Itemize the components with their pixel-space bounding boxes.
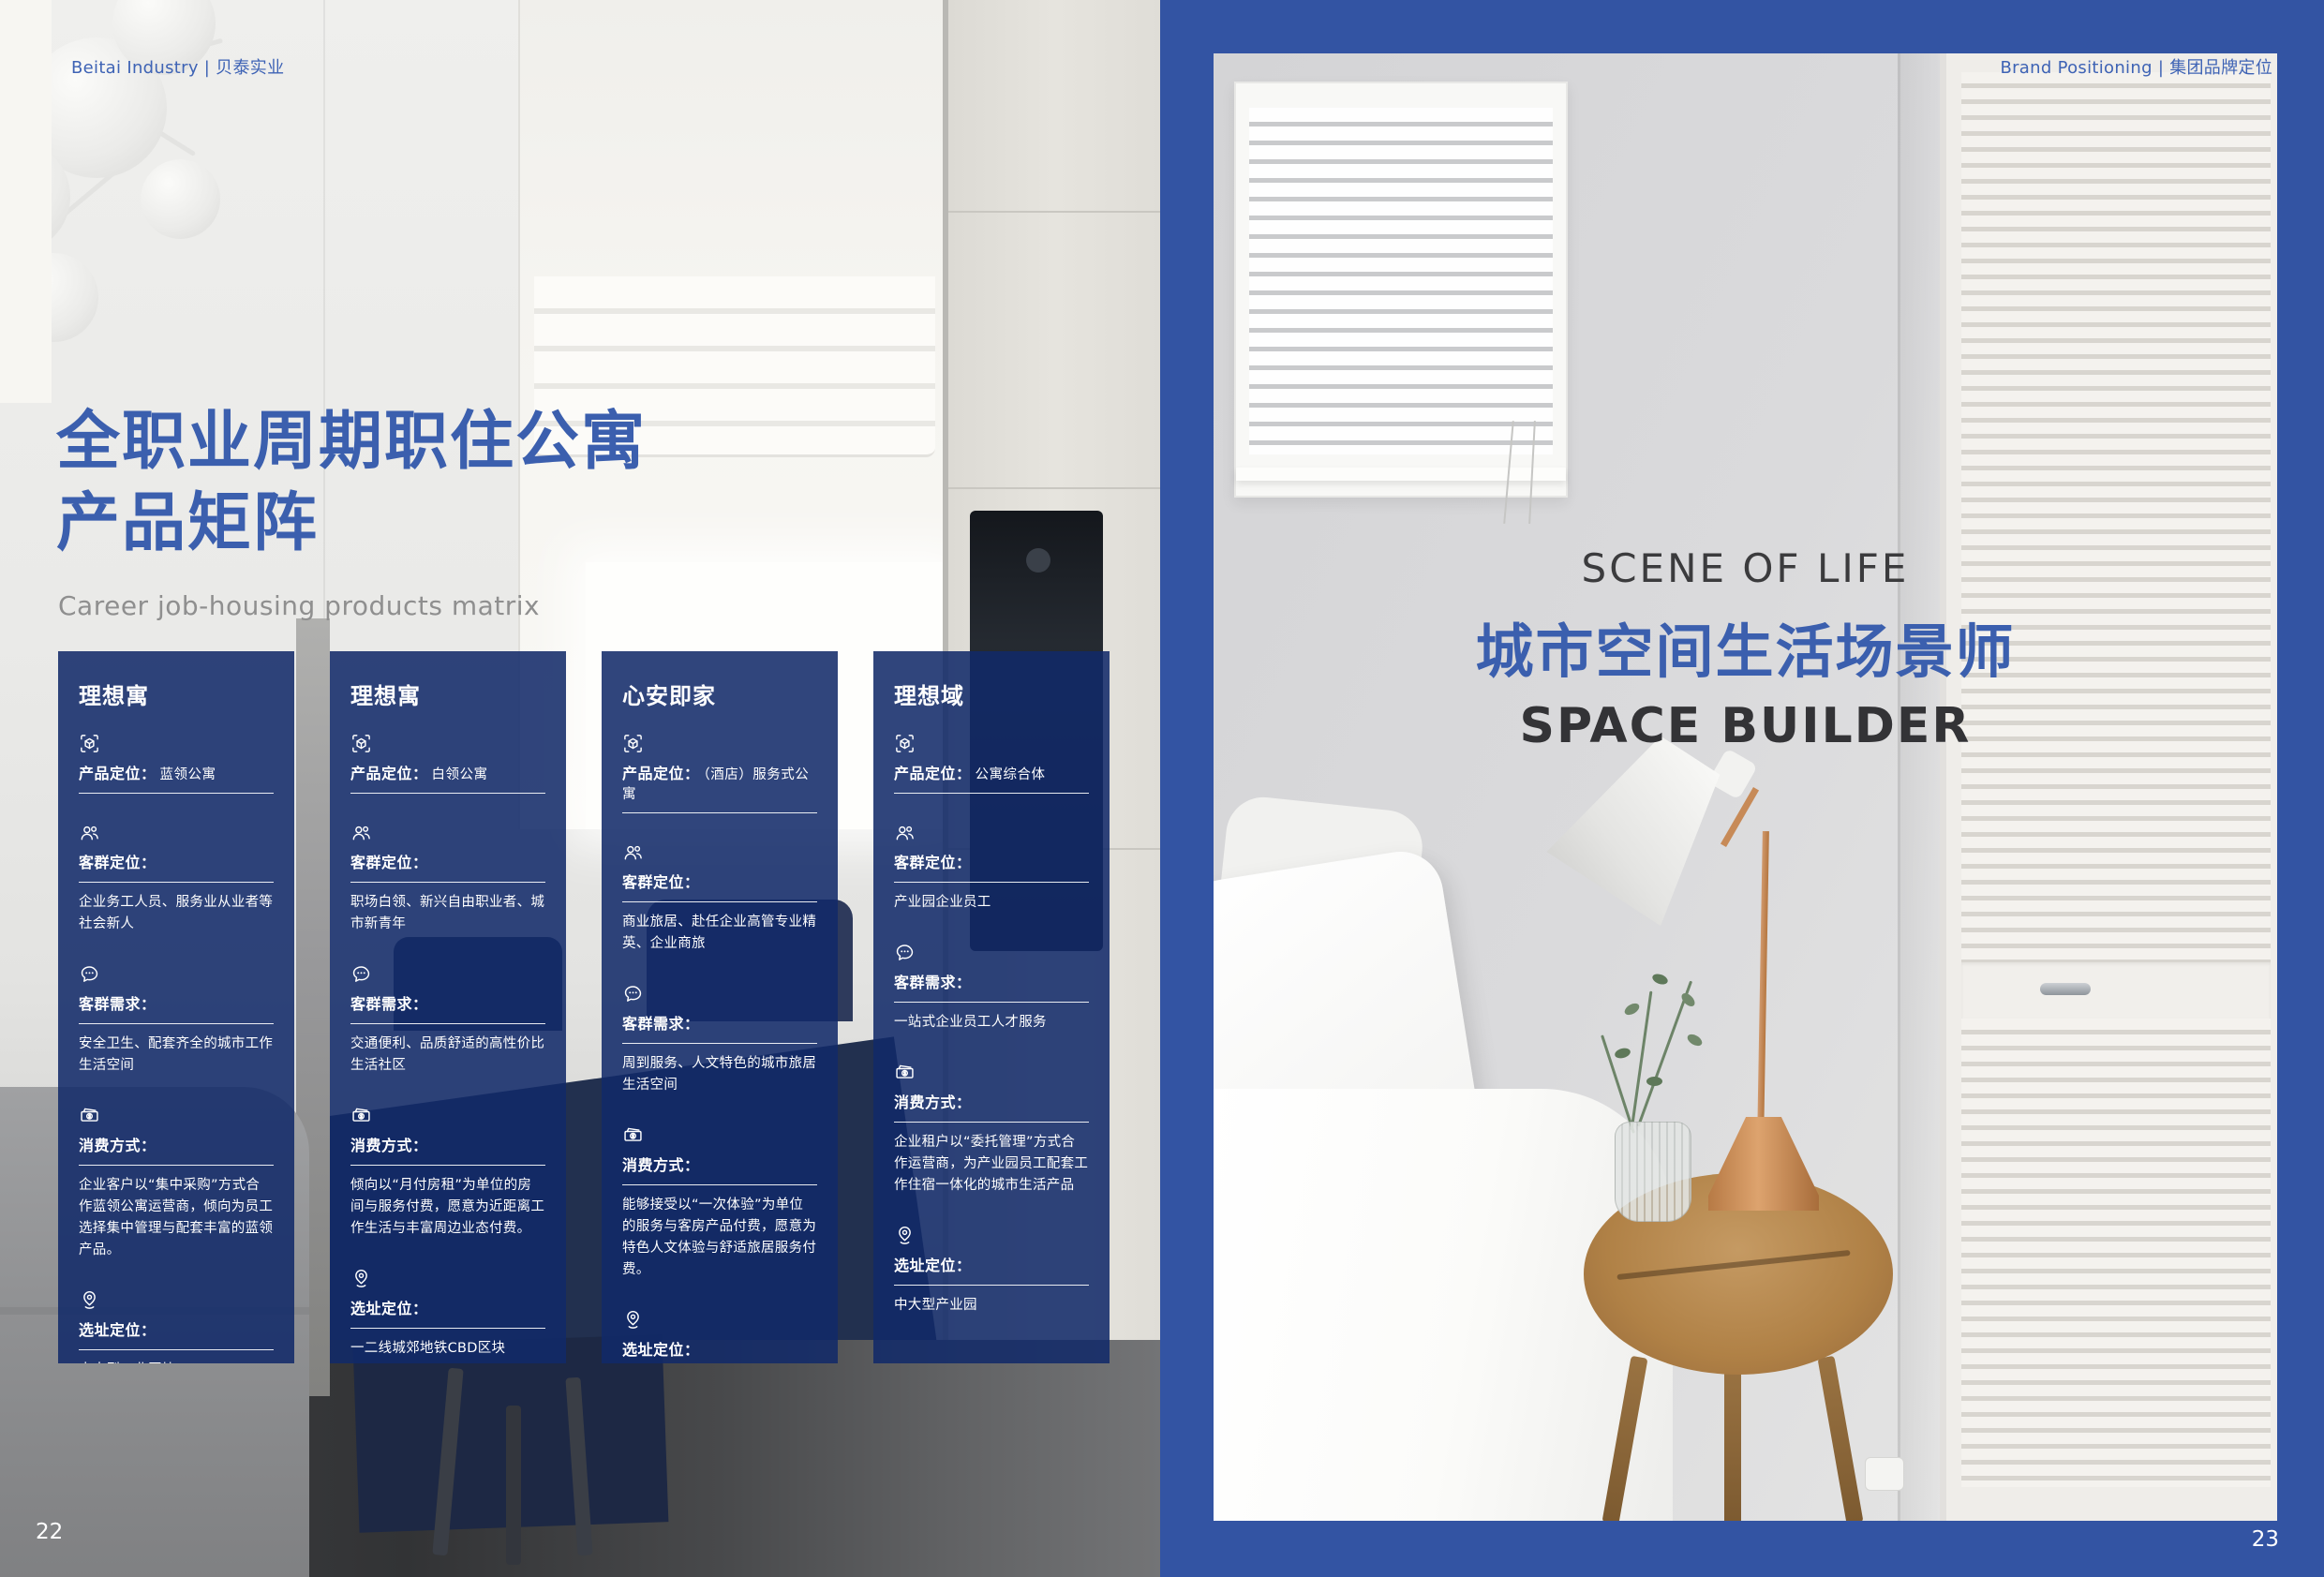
needs-value: 交通便利、品质舒适的高性价比生活社区: [350, 1034, 545, 1077]
banknote-icon: [79, 1105, 100, 1126]
left-page-header: Beitai Industry | 贝泰实业: [71, 54, 284, 79]
chair-leg: [506, 1406, 521, 1565]
audience-section: 客群定位： 企业务工人员、服务业从业者等社会新人: [79, 822, 274, 935]
audience-label: 客群定位：: [350, 850, 545, 883]
product-label: 产品定位：: [350, 765, 428, 782]
product-value: 蓝领公寓: [160, 767, 216, 782]
audience-section: 客群定位： 商业旅居、赴任企业高管专业精英、企业商旅: [622, 841, 817, 955]
site-section: 选址定位： 一二线核心CBD区块: [622, 1309, 817, 1363]
left-page: Beitai Industry | 贝泰实业 全职业周期职住公寓 产品矩阵 Ca…: [0, 0, 1160, 1577]
spend-value: 企业客户以“集中采购”方式合作蓝领公寓运营商，倾向为员工选择集中管理与配套丰富的…: [79, 1175, 274, 1261]
product-section: 产品定位：公寓综合体: [894, 733, 1089, 794]
side-window-light: [0, 0, 52, 403]
site-label: 选址定位：: [350, 1296, 545, 1329]
louver-panel-top: [1961, 72, 2271, 962]
needs-value: 一站式企业员工人才服务: [894, 1012, 1089, 1034]
needs-label: 客群需求：: [622, 1011, 817, 1044]
cube-icon: [622, 733, 644, 754]
plant-leaf: [1614, 1047, 1631, 1060]
desk-lamp-rod: [1757, 831, 1769, 1140]
chat-bubble-icon: [622, 983, 644, 1004]
oven-dial: [1026, 548, 1050, 573]
right-page-header: Brand Positioning | 集团品牌定位: [2000, 54, 2272, 79]
page-subtitle: Career job-housing products matrix: [58, 590, 540, 621]
product-section: 产品定位：蓝领公寓: [79, 733, 274, 794]
spend-section: 消费方式： 企业租户以“委托管理”方式合作运营商，为产业园员工配套工作住宿一体化…: [894, 1062, 1089, 1197]
page-number-left: 22: [36, 1520, 63, 1544]
banknote-icon: [350, 1105, 372, 1126]
cube-icon: [350, 733, 372, 754]
product-card: 理想域 产品定位：公寓综合体 客群定位： 产业园企业员工 客群需求： 一站式企业…: [873, 651, 1110, 1363]
brochure-spread: Beitai Industry | 贝泰实业 全职业周期职住公寓 产品矩阵 Ca…: [0, 0, 2324, 1577]
audience-value: 职场白领、新兴自由职业者、城市新青年: [350, 892, 545, 935]
product-section: 产品定位：（酒店）服务式公寓: [622, 733, 817, 813]
needs-section: 客群需求： 周到服务、人文特色的城市旅居生活空间: [622, 983, 817, 1096]
users-icon: [79, 822, 100, 843]
wardrobe-handle: [2040, 983, 2091, 995]
right-title-block: SCENE OF LIFE 城市空间生活场景师 SPACE BUILDER: [1214, 545, 2277, 754]
cube-icon: [894, 733, 916, 754]
page-title: 全职业周期职住公寓 产品矩阵: [56, 401, 647, 564]
audience-section: 客群定位： 职场白领、新兴自由职业者、城市新青年: [350, 822, 545, 935]
site-section: 选址定位： 中大型产业园: [894, 1225, 1089, 1317]
card-title: 理想寓: [350, 677, 545, 710]
users-icon: [350, 822, 372, 843]
audience-value: 产业园企业员工: [894, 892, 1089, 914]
page-title-line1: 全职业周期职住公寓: [56, 401, 647, 483]
site-label: 选址定位：: [894, 1253, 1089, 1286]
spend-section: 消费方式： 企业客户以“集中采购”方式合作蓝领公寓运营商，倾向为员工选择集中管理…: [79, 1105, 274, 1261]
audience-value: 商业旅居、赴任企业高管专业精英、企业商旅: [622, 912, 817, 955]
plant-leaf: [1686, 1032, 1705, 1048]
site-section: 选址定位： 中大型工业区块: [79, 1289, 274, 1363]
window-sill: [1236, 468, 1566, 481]
card-title: 心安即家: [622, 677, 817, 710]
product-section: 产品定位：白领公寓: [350, 733, 545, 794]
chat-bubble-icon: [350, 963, 372, 985]
card-title: 理想域: [894, 677, 1089, 710]
location-pin-icon: [622, 1309, 644, 1331]
location-pin-icon: [79, 1289, 100, 1311]
spend-label: 消费方式：: [622, 1153, 817, 1185]
users-icon: [622, 841, 644, 863]
audience-label: 客群定位：: [79, 850, 274, 883]
product-card: 心安即家 产品定位：（酒店）服务式公寓 客群定位： 商业旅居、赴任企业高管专业精…: [602, 651, 838, 1363]
spend-label: 消费方式：: [350, 1133, 545, 1166]
site-value: 一二线城郊地铁CBD区块: [350, 1338, 545, 1360]
audience-label: 客群定位：: [894, 850, 1089, 883]
product-label: 产品定位：: [622, 765, 700, 782]
right-page: SCENE OF LIFE 城市空间生活场景师 SPACE BUILDER Br…: [1160, 0, 2324, 1577]
product-card-row: 理想寓 产品定位：蓝领公寓 客群定位： 企业务工人员、服务业从业者等社会新人 客…: [58, 651, 1110, 1363]
wall-corner-shadow: [1900, 53, 1940, 1521]
stool-leg: [1724, 1365, 1741, 1521]
site-value: 中大型工业区块: [79, 1360, 274, 1363]
audience-label: 客群定位：: [622, 870, 817, 902]
right-title-en: SPACE BUILDER: [1214, 698, 2277, 754]
plant-leaf: [1646, 1077, 1662, 1086]
spend-value: 倾向以“月付房租”为单位的房间与服务付费，愿意为近距离工作生活与丰富周边业态付费…: [350, 1175, 545, 1240]
desk-lamp-base: [1708, 1117, 1819, 1211]
window-blinds: [1249, 108, 1553, 454]
right-title-cn: 城市空间生活场景师: [1214, 604, 2277, 689]
product-value: 白领公寓: [432, 767, 488, 782]
needs-value: 安全卫生、配套齐全的城市工作生活空间: [79, 1034, 274, 1077]
plant-leaf: [1651, 972, 1669, 986]
site-section: 选址定位： 一二线城郊地铁CBD区块: [350, 1268, 545, 1360]
users-icon: [894, 822, 916, 843]
needs-section: 客群需求： 一站式企业员工人才服务: [894, 942, 1089, 1034]
stool-leg: [1818, 1356, 1864, 1521]
louvered-wardrobe: [1940, 53, 2277, 1521]
audience-value: 企业务工人员、服务业从业者等社会新人: [79, 892, 274, 935]
product-label: 产品定位：: [894, 765, 972, 782]
louver-panel-bottom: [1961, 1019, 2271, 1487]
product-value: 公寓综合体: [976, 767, 1046, 782]
chat-bubble-icon: [894, 942, 916, 963]
site-label: 选址定位：: [622, 1337, 817, 1363]
spend-value: 企业租户以“委托管理”方式合作运营商，为产业园员工配套工作住宿一体化的城市生活产…: [894, 1132, 1089, 1197]
location-pin-icon: [350, 1268, 372, 1289]
product-card: 理想寓 产品定位：白领公寓 客群定位： 职场白领、新兴自由职业者、城市新青年 客…: [330, 651, 566, 1363]
product-card: 理想寓 产品定位：蓝领公寓 客群定位： 企业务工人员、服务业从业者等社会新人 客…: [58, 651, 294, 1363]
needs-value: 周到服务、人文特色的城市旅居生活空间: [622, 1053, 817, 1096]
bedroom-window: [1234, 82, 1568, 498]
banknote-icon: [894, 1062, 916, 1083]
spend-label: 消费方式：: [79, 1133, 274, 1166]
needs-label: 客群需求：: [350, 991, 545, 1024]
glass-vase: [1615, 1122, 1691, 1222]
needs-label: 客群需求：: [79, 991, 274, 1024]
wardrobe-band: [1961, 962, 2271, 1019]
spend-value: 能够接受以“一次体验”为单位的服务与客房产品付费，愿意为特色人文体验与舒适旅居服…: [622, 1195, 817, 1281]
card-title: 理想寓: [79, 677, 274, 710]
product-label: 产品定位：: [79, 765, 156, 782]
banknote-icon: [622, 1124, 644, 1146]
scene-of-life-eyebrow: SCENE OF LIFE: [1214, 545, 2277, 591]
needs-section: 客群需求： 安全卫生、配套齐全的城市工作生活空间: [79, 963, 274, 1077]
lamp-globe: [141, 159, 220, 239]
spend-section: 消费方式： 能够接受以“一次体验”为单位的服务与客房产品付费，愿意为特色人文体验…: [622, 1124, 817, 1281]
location-pin-icon: [894, 1225, 916, 1246]
bedroom-photo: SCENE OF LIFE 城市空间生活场景师 SPACE BUILDER: [1214, 53, 2277, 1521]
needs-label: 客群需求：: [894, 970, 1089, 1003]
spend-section: 消费方式： 倾向以“月付房租”为单位的房间与服务付费，愿意为近距离工作生活与丰富…: [350, 1105, 545, 1240]
cube-icon: [79, 733, 100, 754]
audience-section: 客群定位： 产业园企业员工: [894, 822, 1089, 914]
plant-leaf: [1623, 1001, 1642, 1017]
site-value: 中大型产业园: [894, 1295, 1089, 1317]
needs-section: 客群需求： 交通便利、品质舒适的高性价比生活社区: [350, 963, 545, 1077]
page-number-right: 23: [2252, 1527, 2279, 1552]
site-label: 选址定位：: [79, 1317, 274, 1350]
chat-bubble-icon: [79, 963, 100, 985]
spend-label: 消费方式：: [894, 1090, 1089, 1123]
page-title-line2: 产品矩阵: [56, 483, 647, 564]
wall-socket: [1865, 1457, 1904, 1491]
